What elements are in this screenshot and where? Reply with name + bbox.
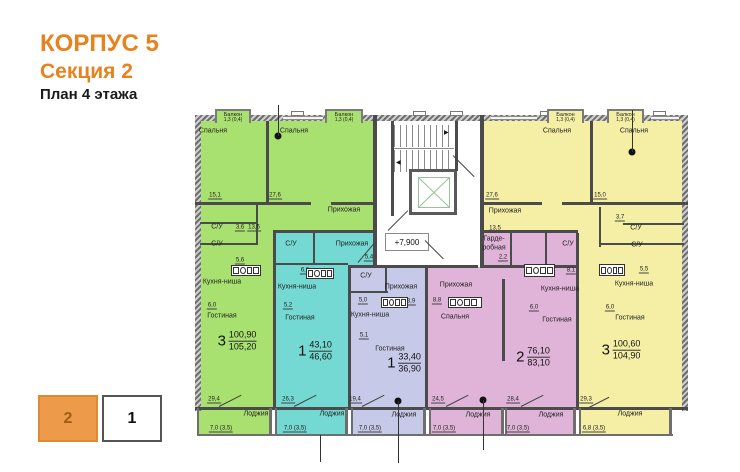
area-label: 24,5 xyxy=(431,397,445,404)
stair-arrow-icon: ◀ xyxy=(396,159,401,166)
apartment-areas: 100,90105,20 xyxy=(229,330,257,353)
apartment-rooms-count: 1 xyxy=(387,355,395,372)
room-label: Лоджия xyxy=(466,412,491,419)
balcony-area: 1,3 (0,4) xyxy=(327,118,361,124)
section-button-2[interactable]: 2 xyxy=(38,395,98,442)
area-label: 3,6 xyxy=(235,225,245,232)
loggia-wall-segment xyxy=(423,408,426,436)
apartment-total-area: 46,60 xyxy=(309,352,332,363)
apartment-total-area: 36,90 xyxy=(398,364,421,375)
wall-segment xyxy=(599,207,601,247)
wall-segment xyxy=(391,121,394,216)
apartment-total-area: 104,90 xyxy=(613,351,641,362)
elevator-car-icon xyxy=(418,177,450,208)
wall-segment xyxy=(195,115,201,411)
room-label: С/У xyxy=(285,241,296,248)
room-label: С/У xyxy=(631,242,642,249)
room-label: Прихожая xyxy=(489,208,521,215)
loggia-wall-segment xyxy=(429,408,431,436)
balcony-area: 1,3 (0,4) xyxy=(217,118,249,124)
vent-box xyxy=(291,111,304,116)
kitchen-fixtures-icon xyxy=(381,297,408,308)
apartment-summary: 143,1046,60 xyxy=(298,340,332,363)
room-label: Спальня xyxy=(199,128,227,135)
balcony: Балкон1,3 (0,4) xyxy=(547,109,584,123)
wall-segment xyxy=(482,202,542,205)
apartment-rooms-count: 2 xyxy=(516,349,524,366)
area-label: 2,2 xyxy=(498,255,508,262)
area-label: 28,4 xyxy=(506,397,520,404)
room-label: Прихожая xyxy=(328,207,360,214)
balcony-area: 1,3 (0,4) xyxy=(609,118,642,124)
section-marker-line xyxy=(398,401,399,463)
apartment-rooms-count: 3 xyxy=(602,342,610,359)
room-label: Лоджия xyxy=(539,412,564,419)
floor-plan: ▶ ◀ +7,900 Балкон1,3 (0,4)Балкон1,3 (0,4… xyxy=(195,105,695,472)
room-label: С/У xyxy=(562,241,573,248)
wall-segment xyxy=(682,115,688,411)
elevation-mark: +7,900 xyxy=(385,233,429,251)
wall-segment xyxy=(545,232,547,265)
wall-segment xyxy=(348,267,351,408)
room-label: Кухня-ниша xyxy=(541,286,579,293)
area-label: 7,0 (3,5) xyxy=(432,426,456,433)
apartment-rooms-count: 1 xyxy=(298,343,306,360)
area-label: 13,6 xyxy=(247,225,261,232)
apartment-areas: 43,1046,60 xyxy=(309,340,332,363)
room-label: робная xyxy=(482,245,505,252)
wall-segment xyxy=(510,232,512,265)
room-label: С/У xyxy=(630,225,641,232)
wall-segment xyxy=(195,202,311,205)
apartment-living-area: 33,40 xyxy=(398,352,421,364)
window-opening xyxy=(491,116,537,120)
area-label: 7,0 (3,5) xyxy=(209,426,233,433)
wall-segment xyxy=(455,121,458,171)
room-label: С/У xyxy=(211,224,222,231)
area-label: 5,0 xyxy=(358,298,368,305)
wall-segment xyxy=(350,291,388,293)
loggia-wall-segment xyxy=(501,408,504,436)
wall-segment xyxy=(275,263,348,265)
stair-landing-line xyxy=(394,148,454,149)
area-label: 19,4 xyxy=(348,397,362,404)
wall-segment xyxy=(313,233,315,265)
area-label: 6,0 xyxy=(207,303,217,310)
room-label: Лоджия xyxy=(320,411,345,418)
vent-box xyxy=(413,111,426,116)
loggia-wall-segment xyxy=(345,408,348,436)
apartment-areas: 100,60104,90 xyxy=(613,339,641,362)
apartment-living-area: 76,10 xyxy=(527,346,550,358)
loggia-wall-segment xyxy=(573,408,576,436)
kitchen-fixtures-icon xyxy=(524,264,555,277)
area-label: 5,6 xyxy=(235,258,245,265)
stair-arrow-icon: ▶ xyxy=(444,129,449,136)
balcony: Балкон1,3 (0,4) xyxy=(607,109,644,123)
area-label: 27,6 xyxy=(268,193,282,200)
section-marker-line xyxy=(278,105,279,136)
room-label: Лоджия xyxy=(392,412,417,419)
room-label: Прихожая xyxy=(440,282,472,289)
area-label: 15,0 xyxy=(593,193,607,200)
room-label: Кухня-ниша xyxy=(203,279,241,286)
loggia-wall-segment xyxy=(275,408,277,436)
area-label: 5,1 xyxy=(359,333,369,340)
room-label: Спальня xyxy=(441,314,469,321)
room-label: Кухня-ниша xyxy=(351,312,389,319)
area-label: 5,4 xyxy=(364,255,374,262)
page-title-building: КОРПУС 5 xyxy=(40,30,159,58)
kitchen-fixtures-icon xyxy=(306,268,334,279)
area-label: 6,8 (3,5) xyxy=(582,426,606,433)
loggia-wall-segment xyxy=(579,408,581,436)
area-label: 3,7 xyxy=(615,215,625,222)
room-label: Гостиная xyxy=(542,317,571,324)
area-label: 5,2 xyxy=(283,303,293,310)
wall-segment xyxy=(200,243,258,245)
area-label: 6,0 xyxy=(605,305,615,312)
wall-segment xyxy=(562,202,688,205)
wall-segment xyxy=(425,267,428,408)
vent-box xyxy=(450,111,463,116)
apartment-living-area: 100,90 xyxy=(229,330,257,342)
area-label: 26,3 xyxy=(281,397,295,404)
apartment-living-area: 100,60 xyxy=(613,339,641,351)
apartment-total-area: 83,10 xyxy=(527,358,550,369)
room-label: Прихожая xyxy=(336,241,368,248)
room-label: Гостиная xyxy=(615,315,644,322)
room-label: Прихожая xyxy=(385,284,417,291)
room-label: Гостиная xyxy=(285,315,314,322)
room-label: Спальня xyxy=(280,128,308,135)
area-label: 7,0 (3,5) xyxy=(358,426,382,433)
section-selector: 21 xyxy=(38,395,162,442)
window-opening xyxy=(283,116,323,120)
wall-segment xyxy=(348,265,478,268)
area-label: 8,1 xyxy=(566,268,576,275)
balcony: Балкон1,3 (0,4) xyxy=(325,109,363,123)
wall-segment xyxy=(273,233,276,408)
section-marker-line xyxy=(632,110,633,152)
page-title-section: Секция 2 xyxy=(40,60,133,84)
apartment-living-area: 43,10 xyxy=(309,340,332,352)
room-label: Спальня xyxy=(620,128,648,135)
room-label: Гарде- xyxy=(483,236,504,243)
area-label: 13,5 xyxy=(488,226,502,233)
area-label: 7,0 (3,5) xyxy=(283,426,307,433)
loggia-wall-segment xyxy=(269,408,272,436)
balcony-area: 1,3 (0,4) xyxy=(549,118,582,124)
staircase: ▶ ◀ xyxy=(394,123,454,175)
kitchen-fixtures-icon xyxy=(448,297,482,308)
wall-segment xyxy=(502,279,505,361)
page-title-floor: План 4 этажа xyxy=(40,86,137,103)
apartment-summary: 133,4036,90 xyxy=(387,352,421,375)
area-label: 15,1 xyxy=(208,193,222,200)
balcony: Балкон1,3 (0,4) xyxy=(215,109,251,123)
loggia-wall-segment xyxy=(669,408,672,436)
apartment-areas: 76,1083,10 xyxy=(527,346,550,369)
room-label: Кухня-ниша xyxy=(615,281,653,288)
area-label: 5,5 xyxy=(639,267,649,274)
apartment-summary: 3100,90105,20 xyxy=(218,330,257,353)
room-label: Кухня-ниша xyxy=(278,284,316,291)
vent-box xyxy=(653,111,666,116)
room-label: Лоджия xyxy=(244,411,269,418)
wall-segment xyxy=(331,202,377,205)
area-label: 6,0 xyxy=(529,305,539,312)
area-label: 29,3 xyxy=(579,397,593,404)
wall-segment xyxy=(576,233,579,408)
section-button-1[interactable]: 1 xyxy=(102,395,162,442)
apartment-total-area: 105,20 xyxy=(229,342,257,353)
apartment-region-green xyxy=(195,118,375,232)
section-marker-line xyxy=(320,435,321,462)
room-label: Спальня xyxy=(543,128,571,135)
loggia-wall-segment xyxy=(351,408,353,436)
window-opening xyxy=(651,116,679,120)
room-label: Гостиная xyxy=(207,313,236,320)
kitchen-fixtures-icon xyxy=(231,265,261,276)
area-label: 29,4 xyxy=(207,397,221,404)
apartment-areas: 33,4036,90 xyxy=(398,352,421,375)
room-label: С/У xyxy=(211,241,222,248)
apartment-region-yellow xyxy=(482,118,688,232)
room-label: С/У xyxy=(360,273,371,280)
apartment-summary: 3100,60104,90 xyxy=(602,339,641,362)
area-label: 7,0 (3,5) xyxy=(506,426,530,433)
loggia-wall-segment xyxy=(197,408,199,436)
apartment-region-cyan xyxy=(275,232,375,267)
floor-plan-page: { "header": { "building": "КОРПУС 5", "s… xyxy=(0,0,740,472)
area-label: 27,6 xyxy=(485,193,499,200)
room-label: Лоджия xyxy=(618,411,643,418)
wall-segment xyxy=(273,230,377,233)
apartment-rooms-count: 3 xyxy=(218,333,226,350)
section-marker-line xyxy=(483,400,484,450)
elevator-shaft xyxy=(409,169,457,215)
apartment-summary: 276,1083,10 xyxy=(516,346,550,369)
area-label: 8,8 xyxy=(432,298,442,305)
kitchen-fixtures-icon xyxy=(599,264,625,276)
